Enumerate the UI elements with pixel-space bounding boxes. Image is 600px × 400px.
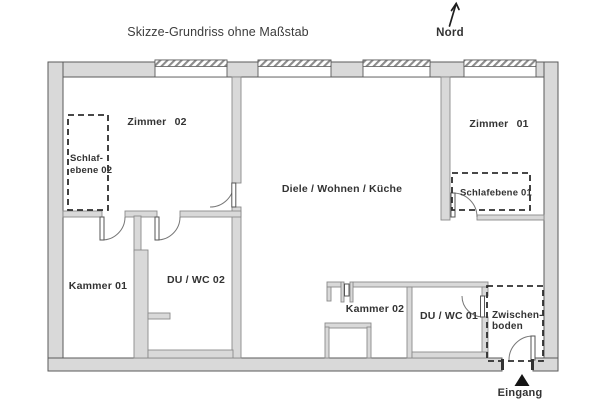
window-1 [155,60,227,77]
shaft-top [325,323,371,328]
wall-zimmer02-bottom-3 [180,211,241,217]
door-duwc02 [155,217,180,240]
schlafebene02-line1: Schlaf- [70,153,112,165]
kammer02-opening-jamb-left [341,282,344,302]
floorplan-drawing [0,0,600,400]
wall-outer-right [544,62,558,371]
schlafebene02-line2: ebene 02 [70,165,112,177]
page-title: Skizze-Grundriss ohne Maßstab [127,25,308,39]
wall-kammer02-duwc01 [407,287,412,358]
zwischenboden-line2: boden [492,321,543,332]
wall-duwc02-stub [148,313,170,319]
north-arrow-icon [450,4,460,27]
window-4 [464,60,536,77]
entrance-triangle-icon [515,374,530,386]
door-eingang [509,336,535,360]
window-3 [363,60,430,77]
room-label-diele-wohnen-kueche: Diele / Wohnen / Küche [282,183,402,195]
shaft-right [367,327,371,358]
zwischenboden-line1: Zwischen- [492,310,543,321]
entrance-opening [501,359,534,386]
room-label-kammer02: Kammer 02 [346,303,404,315]
room-label-duwc02: DU / WC 02 [167,274,225,286]
wall-zimmer01-bottom [477,215,544,220]
room-label-zimmer02: Zimmer 02 [127,116,186,128]
kammer02-opening-jamb-right [350,282,353,302]
wall-kammer02-duwc01-top [353,282,488,287]
wall-outer-bottom-left [48,358,502,371]
room-label-kammer01: Kammer 01 [69,280,127,292]
wall-kammer01-duwc02-upper [134,216,141,252]
kammer02-door-panel [345,284,350,296]
wall-duwc01-bottom [412,352,488,358]
door-zimmer02 [210,183,236,207]
wall-duwc02-bottom [148,350,233,358]
entrance-jamb-right [531,359,534,370]
room-label-zimmer01: Zimmer 01 [469,118,528,130]
shaft-left [325,327,329,358]
window-2 [258,60,331,77]
floorplan-sketch: Skizze-Grundriss ohne Maßstab Nord Zimme… [0,0,600,400]
wall-kammer01-duwc02-lower [134,250,148,358]
room-label-schlafebene01: Schlafebene 01 [460,188,532,199]
room-label-schlafebene02: Schlaf- ebene 02 [70,153,112,176]
wall-kammer02-top-1 [327,282,341,287]
wall-zimmer02-bottom-1 [63,211,102,217]
wall-diele-zimmer01 [441,77,450,220]
entrance-label: Eingang [498,387,543,399]
wall-outer-bottom-right [533,358,558,371]
wall-kammer02-left-stub [327,287,331,301]
wall-diele-duwc02 [232,207,241,358]
wall-outer-left [48,62,63,371]
door-kammer01 [100,217,125,240]
entrance-jamb-left [501,359,504,370]
wall-zimmer02-diele-upper [232,77,241,183]
room-label-zwischenboden: Zwischen- boden [492,310,543,332]
north-label: Nord [436,27,464,39]
room-label-duwc01: DU / WC 01 [420,310,478,322]
